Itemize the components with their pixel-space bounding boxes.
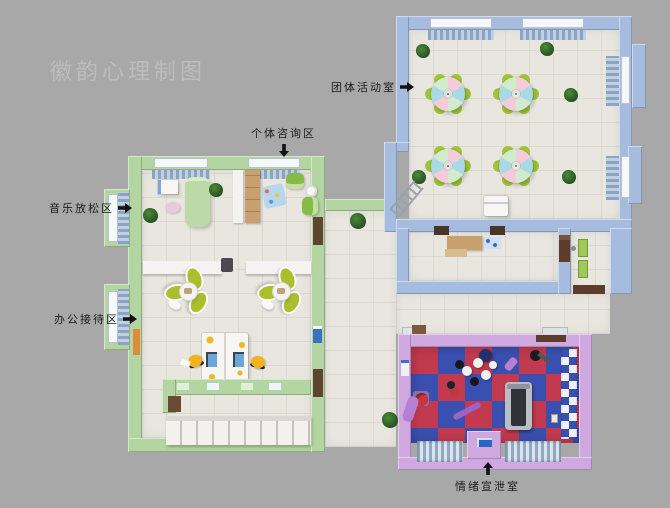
activity-table <box>488 138 544 194</box>
threshold <box>412 325 426 334</box>
chair <box>490 226 505 235</box>
reception-wall-bottom <box>396 281 572 294</box>
green-connector-wall <box>325 199 392 211</box>
entry-mat <box>505 441 561 462</box>
label-emotion-venting-room: 情绪宣泄室 <box>455 462 520 494</box>
padded-wall <box>561 349 577 439</box>
label-text: 个体咨询区 <box>251 125 316 141</box>
punching-ball <box>489 361 497 369</box>
pink-pouf <box>165 202 180 213</box>
group-seating-cluster <box>170 272 210 312</box>
potted-plant-icon <box>540 42 554 56</box>
label-text: 团体活动室 <box>331 79 396 95</box>
blue-window-bay-1 <box>632 44 646 108</box>
label-text: 办公接待区 <box>54 311 119 327</box>
watermark-text: 徽韵心理制图 <box>50 54 206 86</box>
ball <box>450 389 459 396</box>
potted-plant-icon <box>382 412 398 428</box>
punching-ball <box>462 366 472 376</box>
table-top <box>431 149 465 183</box>
blue-poster <box>313 326 322 343</box>
window <box>248 158 300 168</box>
computer-monitor <box>206 352 217 367</box>
blue-window-bay-2 <box>628 146 642 204</box>
toy-rug <box>261 183 287 209</box>
hallway-floor-horizontal <box>396 294 610 334</box>
window <box>154 158 208 168</box>
punching-bag <box>470 377 479 386</box>
blue-wall-bottom <box>396 219 632 232</box>
relaxation-device <box>158 180 178 194</box>
blue-floor-sign <box>477 438 492 447</box>
up-arrow-icon <box>483 462 493 475</box>
window <box>621 156 630 198</box>
side-table <box>305 185 317 197</box>
wall-switch <box>551 414 558 423</box>
potted-plant-icon <box>562 170 576 184</box>
group-seating-cluster <box>263 272 303 312</box>
door-knob <box>571 246 576 251</box>
desk-items <box>484 237 501 249</box>
table-top <box>499 77 533 111</box>
right-arrow-icon <box>118 203 132 213</box>
brown-door <box>559 235 570 262</box>
brown-door <box>168 396 181 412</box>
punching-ball <box>473 358 483 368</box>
window <box>430 18 492 28</box>
door-opening <box>313 217 323 245</box>
floor-plan-canvas: 徽韵心理制图 <box>0 0 670 508</box>
green-door <box>578 239 588 257</box>
podium-desk <box>484 196 508 216</box>
window <box>621 56 630 104</box>
label-text: 情绪宣泄室 <box>455 478 520 494</box>
chair <box>434 226 449 235</box>
document <box>241 383 253 390</box>
printer <box>221 258 233 272</box>
potted-plant-icon <box>350 213 366 229</box>
right-arrow-icon <box>400 82 414 92</box>
reception-counter <box>447 236 482 250</box>
label-office-reception-area: 办公接待区 <box>54 311 137 327</box>
potted-plant-icon <box>564 88 578 102</box>
treadmill-bar <box>507 384 530 389</box>
punching-ball <box>481 370 491 380</box>
potted-plant-icon <box>143 208 158 223</box>
label-individual-counseling-area: 个体咨询区 <box>251 125 316 157</box>
hallway-floor-vertical <box>325 211 396 447</box>
label-music-relaxation-area: 音乐放松区 <box>49 200 132 216</box>
entry-mat <box>417 441 463 462</box>
right-arrow-icon <box>123 314 137 324</box>
curtain <box>428 30 494 40</box>
partition-panel <box>233 170 243 223</box>
down-arrow-icon <box>279 144 289 157</box>
activity-table <box>420 138 476 194</box>
counter-chair <box>445 249 467 257</box>
white-poster <box>401 360 409 376</box>
activity-table <box>420 66 476 122</box>
round-table <box>180 283 197 300</box>
document <box>269 383 281 390</box>
bookshelf <box>245 170 260 223</box>
table-top <box>499 149 533 183</box>
orange-sign <box>133 329 140 355</box>
recliner-chair <box>185 177 210 227</box>
activity-table <box>488 66 544 122</box>
potted-plant-icon <box>209 183 223 197</box>
purple-wall-right <box>579 334 592 470</box>
door-opening <box>313 369 323 397</box>
computer-monitor <box>233 352 244 367</box>
threshold <box>536 335 566 342</box>
window <box>522 18 584 28</box>
label-group-activity-room: 团体活动室 <box>331 79 414 95</box>
treadmill-belt <box>511 388 526 426</box>
label-text: 音乐放松区 <box>49 200 114 216</box>
green-door <box>578 260 588 278</box>
threshold <box>573 285 605 294</box>
round-table <box>273 283 290 300</box>
blue-wall-pillar <box>610 228 632 294</box>
locker-row <box>166 416 311 445</box>
curtain <box>520 30 586 40</box>
curtain <box>606 56 619 106</box>
document <box>207 383 219 390</box>
potted-plant-icon <box>416 44 430 58</box>
green-armchair <box>302 197 318 215</box>
curtain <box>606 156 619 200</box>
green-armchair <box>286 173 304 189</box>
ball <box>447 381 455 389</box>
document <box>177 383 189 390</box>
table-top <box>431 77 465 111</box>
